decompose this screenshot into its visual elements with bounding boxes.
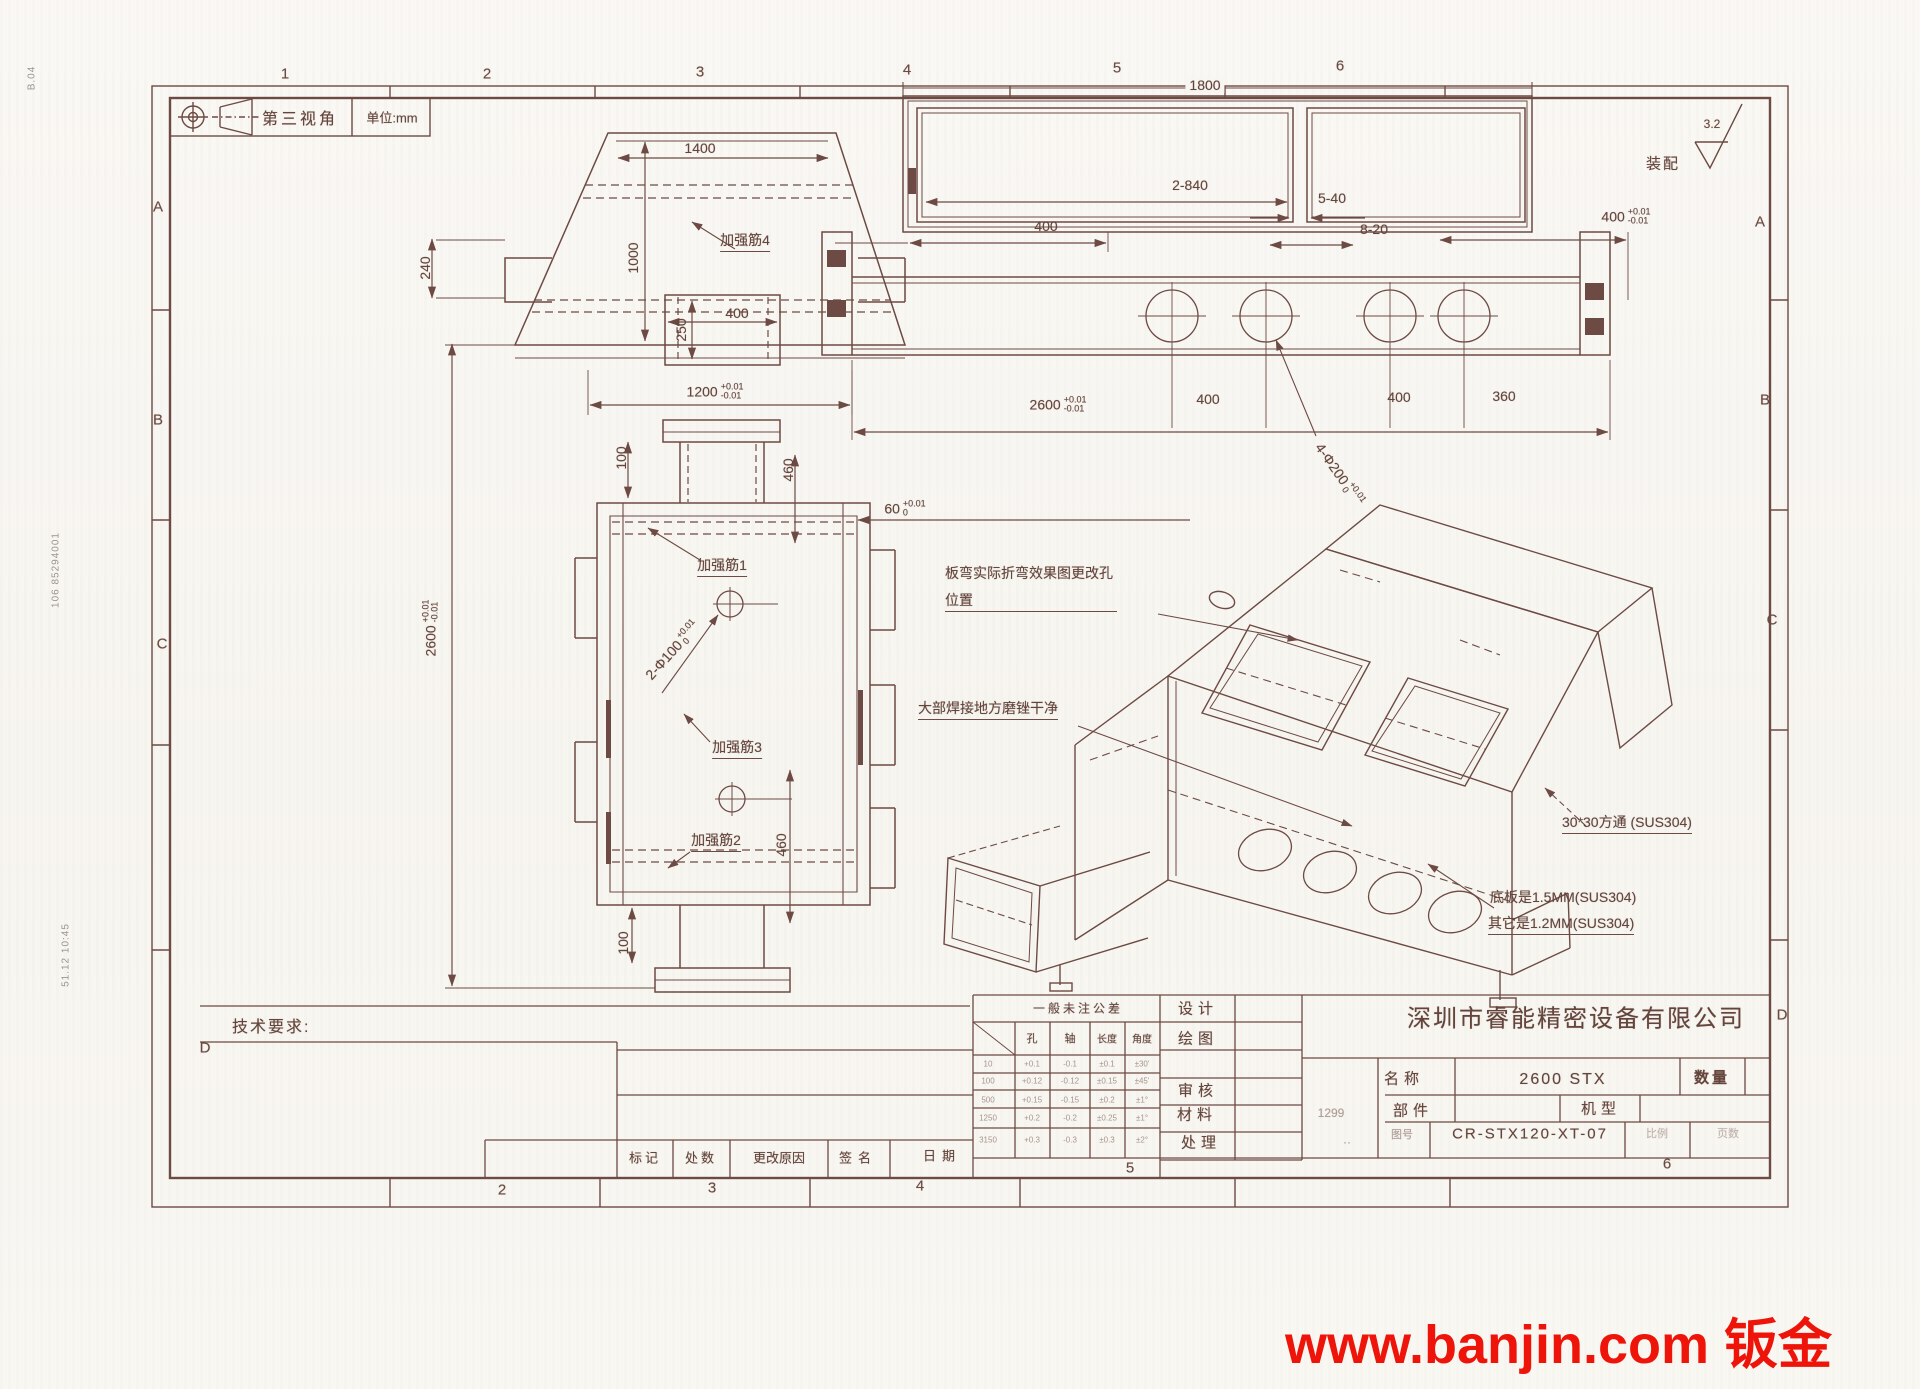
scanned-engineering-drawing: 1 2 3 4 5 6 2 3 4 5 A B C D A B C D 第三视角…: [0, 0, 1920, 1389]
dim-460-top: 460: [780, 458, 796, 481]
tolerance-cell: -0.1: [1063, 1060, 1077, 1069]
dim-400-b: 400: [1387, 389, 1410, 405]
company-name: 深圳市睿能精密设备有限公司: [1407, 999, 1745, 1034]
zone-number-bottom: 2: [498, 1182, 506, 1199]
zone-number-top: 3: [696, 64, 704, 81]
zone-number-bottom: 4: [916, 1178, 924, 1195]
field-material-value: 1299: [1318, 1106, 1345, 1120]
tolerance-cell: ±0.1: [1099, 1060, 1115, 1069]
dim-1800: 1800: [1185, 77, 1224, 93]
zone-number-bottom: 3: [708, 1180, 716, 1197]
tolerance-cell: +0.3: [1024, 1136, 1040, 1145]
rib3-label: 加强筋3: [712, 737, 762, 759]
tolerance-cell: ±1°: [1136, 1096, 1148, 1105]
dim-240: 240: [417, 256, 433, 279]
field-sheet: 页数: [1717, 1125, 1739, 1141]
rib1-label: 加强筋1: [697, 555, 747, 577]
dim-100-bottom: 100: [615, 931, 631, 954]
tolerance-cell: +0.12: [1022, 1077, 1042, 1086]
dim-5-40: 5-40: [1318, 190, 1346, 206]
front-view-lines: [445, 344, 1190, 992]
field-name: 名称: [1384, 1068, 1424, 1089]
dim-60-value: 60: [884, 500, 900, 516]
dim-400-a: 400: [1196, 391, 1219, 407]
watermark-banjin: www.banjin.com 钣金: [1285, 1300, 1832, 1379]
note-other-plate: 其它是1.2MM(SUS304): [1488, 913, 1634, 935]
rib4-label: 加强筋4: [720, 230, 770, 252]
rib2-label: 加强筋2: [691, 830, 741, 852]
dim-8-20: 8-20: [1360, 221, 1388, 237]
tolerance-cell: ±30': [1135, 1060, 1150, 1069]
tolerance-cell: ±45': [1135, 1077, 1150, 1086]
tolerance-col-hole: 孔: [1027, 1030, 1038, 1046]
tolerance-cell: -0.3: [1063, 1136, 1077, 1145]
tolerance-range: 500: [981, 1096, 994, 1105]
dim-2600-toleranced: 2600 +0.01-0.01: [422, 600, 439, 657]
dim-2600-value: 2600: [1030, 396, 1061, 412]
zone-letter-left: A: [153, 199, 163, 216]
sheet-border: [152, 86, 1788, 1207]
scan-margin-mark: 106 85294001: [51, 532, 62, 608]
tolerance-cell: -0.2: [1063, 1114, 1077, 1123]
scan-margin-mark: B.04: [27, 66, 38, 91]
revision-col-signature: 签名: [839, 1148, 877, 1167]
note-bend-line1: 板弯实际折弯效果图更改孔: [945, 563, 1113, 583]
tolerance-cell: -0.12: [1061, 1077, 1079, 1086]
dim-400-right-toleranced: 400 +0.01-0.01: [1601, 208, 1650, 225]
dim-400-left: 400: [1034, 218, 1057, 234]
tol-lower: -0.01: [1064, 404, 1087, 413]
tolerance-col-shaft: 轴: [1065, 1030, 1076, 1046]
tolerance-table-title: 一般未注公差: [1033, 1000, 1123, 1017]
tolerance-col-angle: 角度: [1132, 1031, 1152, 1046]
tolerance-cell: +0.1: [1024, 1060, 1040, 1069]
field-material: 材料: [1177, 1104, 1217, 1125]
part-name-value: 2600 STX: [1519, 1071, 1606, 1089]
tolerance-cell: ±0.25: [1097, 1114, 1117, 1123]
unit-label: 单位:mm: [366, 108, 417, 127]
tol-lower: -0.01: [1628, 216, 1651, 225]
tolerance-cell: +0.15: [1022, 1096, 1042, 1105]
tolerance-col-length: 长度: [1097, 1031, 1117, 1046]
zone-number-top: 2: [483, 66, 491, 83]
zone-letter-left: C: [157, 636, 168, 653]
tol-lower: 0: [903, 508, 926, 517]
field-drawing-no-label: 图号: [1391, 1126, 1413, 1142]
tolerance-range: 10: [984, 1060, 993, 1069]
zone-letter-right: D: [1777, 1007, 1788, 1024]
tolerance-range: 100: [981, 1077, 994, 1086]
dim-60-toleranced: 60 +0.010: [884, 500, 925, 517]
field-design: 设计: [1178, 998, 1218, 1019]
tolerance-cell: -0.15: [1061, 1096, 1079, 1105]
revision-col-mark: 标记: [629, 1148, 661, 1167]
projection-label: 第三视角: [262, 105, 338, 129]
tech-requirements-label: 技术要求:: [232, 1013, 310, 1037]
tolerance-cell: ±0.2: [1099, 1096, 1115, 1105]
field-model: 机型: [1581, 1098, 1621, 1119]
tolerance-range: 3150: [979, 1136, 997, 1145]
zone-letter-left: B: [153, 412, 163, 429]
dim-460-bottom: 460: [773, 833, 789, 856]
field-scale: 比例: [1646, 1125, 1668, 1141]
zone-number-top: 1: [281, 66, 289, 83]
dim-2-840: 2-840: [1172, 177, 1208, 193]
note-base-plate: 底板是1.5MM(SUS304): [1490, 887, 1636, 907]
note-bend-line2: 位置: [945, 590, 1117, 612]
tolerance-cell: +0.2: [1024, 1114, 1040, 1123]
dim-250: 250: [673, 318, 689, 341]
revision-col-reason: 更改原因: [753, 1148, 805, 1167]
dim-100-top: 100: [613, 446, 629, 469]
dim-400-neck: 400: [725, 305, 748, 321]
tolerance-cell: ±1°: [1136, 1114, 1148, 1123]
drawing-number: CR-STX120-XT-07: [1452, 1126, 1608, 1143]
scan-margin-mark: 51.12 10:45: [61, 923, 72, 987]
side-view-lines: [822, 82, 1628, 440]
roughness-symbol: [1695, 104, 1742, 168]
dim-2600-value: 2600: [422, 625, 438, 656]
revision-col-date: 日期: [923, 1146, 961, 1165]
zone-letter-right: A: [1755, 214, 1765, 231]
tolerance-cell: ±2°: [1136, 1136, 1148, 1145]
zone-letter-left: D: [200, 1040, 211, 1057]
tolerance-range: 1250: [979, 1114, 997, 1123]
field-check: 审核: [1178, 1080, 1218, 1101]
field-draw: 绘图: [1178, 1028, 1218, 1049]
dim-360: 360: [1492, 388, 1515, 404]
zone-letter-right: C: [1767, 612, 1778, 629]
zone-number-top: 4: [903, 62, 911, 79]
tolerance-cell: ±0.15: [1097, 1077, 1117, 1086]
field-treatment-value: ··: [1343, 1135, 1351, 1149]
field-quantity: 数量: [1694, 1067, 1730, 1088]
zone-letter-right: B: [1760, 392, 1770, 409]
note-weld: 大部焊接地方磨锉干净: [918, 698, 1058, 720]
dim-1200-value: 1200: [687, 383, 718, 399]
dim-1000: 1000: [625, 242, 641, 273]
note-square-tube: 30*30方通 (SUS304): [1562, 812, 1692, 834]
dim-1400: 1400: [684, 140, 715, 156]
revision-col-count: 处数: [685, 1148, 717, 1167]
tolerance-cell: ±0.3: [1099, 1136, 1115, 1145]
field-part: 部件: [1393, 1100, 1433, 1121]
field-treatment: 处理: [1181, 1132, 1221, 1153]
tol-lower: -0.01: [721, 391, 744, 400]
roughness-value: 3.2: [1704, 117, 1721, 131]
tol-lower: -0.01: [430, 600, 439, 623]
page-number-value: 6: [1663, 1156, 1671, 1173]
assembly-label: 装配: [1646, 153, 1680, 174]
zone-number-top: 5: [1113, 60, 1121, 77]
zone-number-top: 6: [1336, 58, 1344, 75]
dim-1200-toleranced: 1200 +0.01-0.01: [687, 383, 744, 400]
zone-number-bottom: 5: [1126, 1160, 1134, 1177]
dim-400-value: 400: [1601, 208, 1624, 224]
top-view-lines: [432, 133, 905, 415]
dim-2600-bottom-toleranced: 2600 +0.01-0.01: [1030, 396, 1087, 413]
